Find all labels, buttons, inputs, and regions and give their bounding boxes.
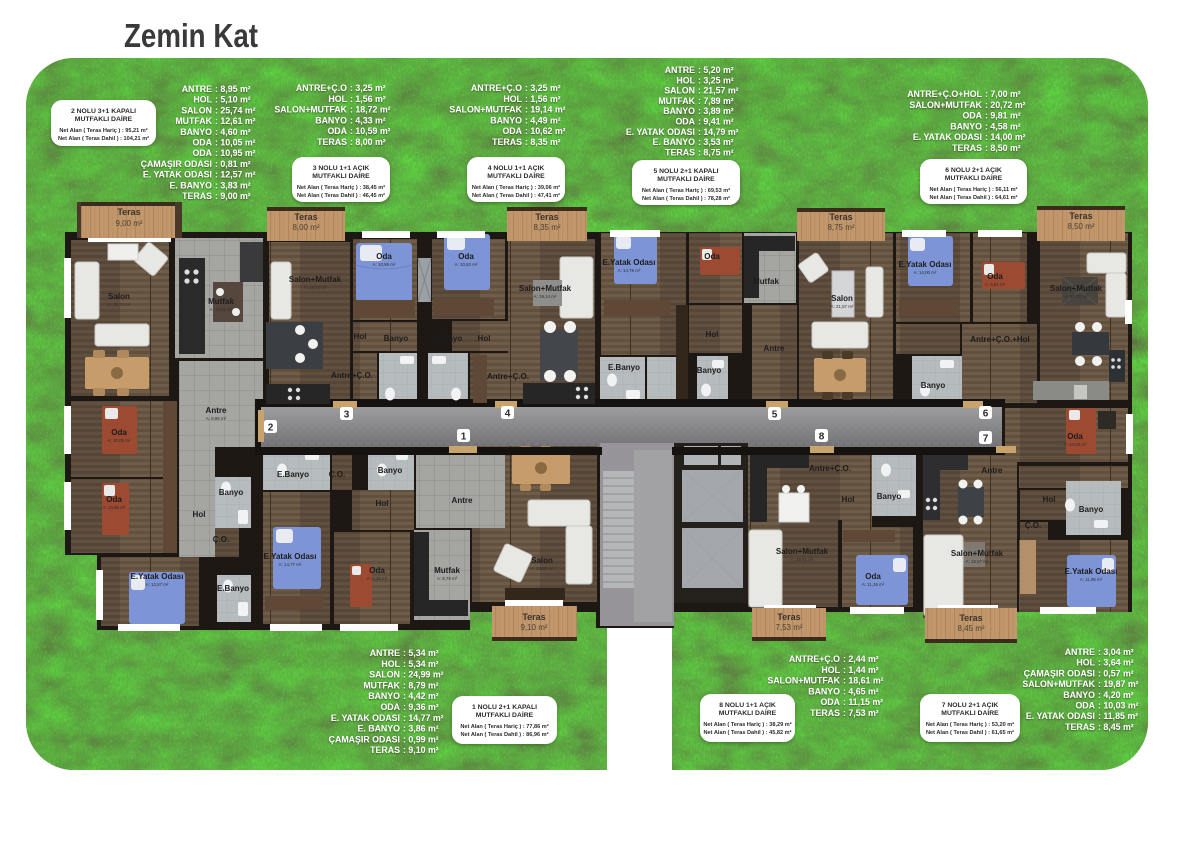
svg-text:Net Alan ( Teras Hariç ) : 39,: Net Alan ( Teras Hariç ) : 39,06 m² (472, 184, 560, 191)
svg-text:MUTFAKLI DAİRE: MUTFAKLI DAİRE (719, 709, 777, 717)
svg-text:MUTFAKLI DAİRE: MUTFAKLI DAİRE (487, 172, 545, 180)
svg-text:: 19,14 m²: : 19,14 m² (525, 105, 566, 115)
svg-text:2: 2 (268, 423, 274, 434)
svg-text:Net Alan ( Teras Hariç ) : 56,: Net Alan ( Teras Hariç ) : 56,11 m² (930, 186, 1018, 193)
svg-text:: 4,42 m²: : 4,42 m² (403, 691, 439, 701)
svg-text:ANTRE+Ç.O: ANTRE+Ç.O (471, 83, 522, 93)
svg-text:: 18,61 m²: : 18,61 m² (843, 676, 884, 686)
svg-text:ODA: ODA (675, 117, 695, 127)
svg-text:: 5,34 m²: : 5,34 m² (403, 648, 439, 658)
svg-text:6: 6 (983, 409, 989, 420)
svg-text:TERAS: TERAS (1065, 722, 1095, 732)
svg-text:: 14,79 m²: : 14,79 m² (698, 127, 739, 137)
svg-text:: 0,99 m²: : 0,99 m² (403, 734, 439, 744)
svg-text:Oda: Oda (1067, 432, 1083, 441)
svg-text:A: 14,00 m²: A: 14,00 m² (914, 270, 937, 275)
svg-text:: 8,75 m²: : 8,75 m² (698, 147, 734, 157)
svg-text:ODA: ODA (820, 697, 840, 707)
svg-text:Net Alan ( Teras Dahil ) : 86,: Net Alan ( Teras Dahil ) : 86,96 m² (461, 731, 549, 738)
svg-text:ÇAMAŞIR ODASI: ÇAMAŞIR ODASI (1024, 668, 1095, 678)
svg-text:TERAS: TERAS (182, 191, 212, 201)
svg-text:Zemin Kat: Zemin Kat (124, 18, 258, 55)
svg-text:4: 4 (505, 409, 511, 420)
svg-text:E.Yatak Odası: E.Yatak Odası (1065, 567, 1118, 576)
svg-text:SALON+MUTFAK: SALON+MUTFAK (909, 100, 982, 110)
svg-text:HOL: HOL (676, 75, 695, 85)
svg-text:: 24,99 m²: : 24,99 m² (403, 670, 444, 680)
svg-text:ANTRE: ANTRE (1065, 647, 1095, 657)
svg-text:Hol: Hol (478, 334, 491, 343)
svg-text:Banyo: Banyo (921, 381, 946, 390)
svg-text:7,53 m²: 7,53 m² (775, 623, 802, 632)
svg-text:7: 7 (983, 434, 989, 445)
svg-text:SALON+MUTFAK: SALON+MUTFAK (449, 105, 522, 115)
svg-text:: 5,34 m²: : 5,34 m² (403, 659, 439, 669)
svg-text:ODA: ODA (380, 702, 400, 712)
svg-text:Mutfak: Mutfak (434, 566, 460, 575)
svg-text:: 3,86 m²: : 3,86 m² (403, 724, 439, 734)
svg-text:: 3,53 m²: : 3,53 m² (698, 137, 734, 147)
svg-text:Net Alan ( Teras Hariç ) : 95,: Net Alan ( Teras Hariç ) : 95,21 m² (59, 127, 147, 134)
svg-text:ANTRE+Ç.O: ANTRE+Ç.O (296, 83, 347, 93)
svg-text:HOL: HOL (328, 94, 347, 104)
svg-text:Teras: Teras (522, 612, 545, 622)
svg-text:: 3,25 m²: : 3,25 m² (525, 83, 561, 93)
svg-text:Net Alan ( Teras Dahil ) : 64,: Net Alan ( Teras Dahil ) : 64,61 m² (930, 194, 1018, 201)
svg-text:Banyo: Banyo (1079, 505, 1104, 514)
svg-text:: 19,87 m²: : 19,87 m² (1098, 679, 1139, 689)
svg-text:Salon+Mutfak: Salon+Mutfak (289, 275, 342, 284)
svg-text:BANYO: BANYO (180, 127, 212, 137)
svg-text:: 18,72 m²: : 18,72 m² (350, 105, 391, 115)
svg-text:Banyo: Banyo (877, 492, 902, 501)
svg-text:Banyo: Banyo (438, 334, 463, 343)
svg-text:: 3,25 m²: : 3,25 m² (698, 75, 734, 85)
svg-text:MUTFAK: MUTFAK (658, 96, 695, 106)
svg-text:TERAS: TERAS (665, 147, 695, 157)
svg-text:A: 10,59 m²: A: 10,59 m² (373, 262, 396, 267)
svg-text:Antre+Ç.O.: Antre+Ç.O. (487, 372, 529, 381)
svg-text:: 1,56 m²: : 1,56 m² (525, 94, 561, 104)
svg-text:Hol: Hol (193, 510, 206, 519)
svg-text:: 11,85 m²: : 11,85 m² (1098, 711, 1138, 721)
svg-text:: 4,60 m²: : 4,60 m² (215, 127, 251, 137)
svg-text:: 7,89 m²: : 7,89 m² (698, 96, 734, 106)
svg-text:3 NOLU 1+1 AÇIK: 3 NOLU 1+1 AÇIK (313, 165, 370, 172)
svg-text:: 8,50 m²: : 8,50 m² (985, 143, 1021, 153)
svg-text:: 3,89 m²: : 3,89 m² (698, 106, 734, 116)
svg-text:Salon: Salon (108, 292, 130, 301)
svg-text:BANYO: BANYO (1063, 690, 1095, 700)
svg-text:Teras: Teras (959, 613, 982, 623)
svg-text:: 3,64 m²: : 3,64 m² (1098, 658, 1134, 668)
svg-text:A: 9,36 m²: A: 9,36 m² (367, 576, 388, 581)
svg-text:: 1,44 m²: : 1,44 m² (843, 665, 879, 675)
svg-text:8,75 m²: 8,75 m² (827, 223, 854, 232)
svg-text:MUTFAKLI DAİRE: MUTFAKLI DAİRE (476, 711, 534, 719)
svg-text:8: 8 (819, 432, 825, 443)
svg-text:TERAS: TERAS (810, 708, 840, 718)
svg-text:A: 10,95 m²: A: 10,95 m² (103, 505, 126, 510)
svg-text:BANYO: BANYO (368, 691, 400, 701)
svg-text:: 10,95 m²: : 10,95 m² (215, 148, 256, 158)
svg-text:Net Alan ( Teras Hariç ) : 53,: Net Alan ( Teras Hariç ) : 53,20 m² (926, 721, 1014, 728)
svg-text:2 NOLU 3+1 KAPALI: 2 NOLU 3+1 KAPALI (71, 108, 136, 115)
svg-text:ODA: ODA (192, 148, 212, 158)
svg-text:A: 11,85 m²: A: 11,85 m² (1080, 577, 1103, 582)
svg-text:TERAS: TERAS (952, 143, 982, 153)
svg-text:SALON+MUTFAK: SALON+MUTFAK (767, 676, 840, 686)
svg-text:: 4,65 m²: : 4,65 m² (843, 686, 879, 696)
svg-text:Hol: Hol (842, 495, 855, 504)
svg-text:ANTRE: ANTRE (370, 648, 400, 658)
svg-text:Mutfak: Mutfak (208, 297, 234, 306)
svg-text:A: 25,74 m²: A: 25,74 m² (108, 302, 131, 307)
svg-text:A: 9,81 m²: A: 9,81 m² (985, 282, 1006, 287)
svg-text:A: 19,14 m²: A: 19,14 m² (534, 294, 557, 299)
svg-text:: 21,57 m²: : 21,57 m² (698, 86, 739, 96)
svg-text:Net Alan ( Teras Hariç ) : 69,: Net Alan ( Teras Hariç ) : 69,53 m² (642, 187, 730, 194)
svg-text:: 10,62 m²: : 10,62 m² (525, 126, 566, 136)
svg-text:Banyo: Banyo (697, 366, 722, 375)
svg-text:Oda: Oda (704, 252, 720, 261)
svg-text:BANYO: BANYO (663, 106, 695, 116)
svg-text:HOL: HOL (821, 665, 840, 675)
svg-text:: 10,59 m²: : 10,59 m² (350, 126, 391, 136)
svg-text:Ç.O.: Ç.O. (1025, 521, 1041, 530)
svg-text:HOL: HOL (193, 95, 212, 105)
svg-text:Antre: Antre (764, 344, 785, 353)
svg-text:: 9,81 m²: : 9,81 m² (985, 111, 1021, 121)
svg-text:HOL: HOL (381, 659, 400, 669)
svg-text:8,45 m²: 8,45 m² (957, 624, 984, 633)
svg-text:Antre: Antre (982, 466, 1003, 475)
svg-text:E.Yatak Odası: E.Yatak Odası (131, 572, 184, 581)
svg-text:Hol: Hol (376, 499, 389, 508)
svg-text:E. YATAK ODASI: E. YATAK ODASI (913, 132, 982, 142)
svg-text:Salon+Mutfak: Salon+Mutfak (519, 284, 572, 293)
svg-text:Oda: Oda (106, 495, 122, 504)
svg-text:8,35 m²: 8,35 m² (533, 223, 560, 232)
svg-text:9,00 m²: 9,00 m² (115, 219, 142, 228)
svg-text:: 4,20 m²: : 4,20 m² (1098, 690, 1134, 700)
svg-text:SALON: SALON (181, 105, 212, 115)
svg-text:TERAS: TERAS (370, 745, 400, 755)
svg-text:: 14,00 m²: : 14,00 m² (985, 132, 1026, 142)
svg-text:Teras: Teras (829, 212, 852, 222)
svg-text:5: 5 (772, 410, 778, 421)
svg-text:Net Alan ( Teras Dahil ) : 104: Net Alan ( Teras Dahil ) : 104,21 m² (58, 135, 149, 142)
svg-text:HOL: HOL (503, 94, 522, 104)
svg-text:ODA: ODA (192, 138, 212, 148)
svg-text:Antre: Antre (452, 496, 473, 505)
svg-text:: 7,53 m²: : 7,53 m² (843, 708, 879, 718)
svg-text:Net Alan ( Teras Hariç ) : 38,: Net Alan ( Teras Hariç ) : 38,29 m² (703, 721, 791, 728)
svg-text:E. YATAK ODASI: E. YATAK ODASI (626, 127, 695, 137)
svg-text:Teras: Teras (535, 212, 558, 222)
svg-text:: 12,57 m²: : 12,57 m² (215, 170, 256, 180)
svg-text:ANTRE+Ç.O: ANTRE+Ç.O (789, 654, 840, 664)
svg-text:Ç.O.: Ç.O. (213, 535, 229, 544)
svg-text:Antre+Ç.O.+Hol: Antre+Ç.O.+Hol (970, 335, 1030, 344)
svg-text:: 11,15 m²: : 11,15 m² (843, 697, 883, 707)
svg-text:A: 10,03 m²: A: 10,03 m² (1064, 442, 1087, 447)
svg-text:E.Yatak Odası: E.Yatak Odası (264, 552, 317, 561)
svg-text:Hol: Hol (706, 330, 719, 339)
svg-text:: 10,03 m²: : 10,03 m² (1098, 701, 1139, 711)
svg-text:ODA: ODA (502, 126, 522, 136)
svg-text:1: 1 (461, 432, 467, 443)
svg-text:Teras: Teras (777, 612, 800, 622)
svg-text:3: 3 (344, 410, 350, 421)
svg-text:: 0,81 m²: : 0,81 m² (215, 159, 251, 169)
svg-text:8,50 m²: 8,50 m² (1067, 222, 1094, 231)
svg-text:BANYO: BANYO (808, 686, 840, 696)
svg-text:7 NOLU 2+1 AÇIK: 7 NOLU 2+1 AÇIK (942, 702, 999, 709)
svg-text:ODA: ODA (962, 111, 982, 121)
svg-text:Hol: Hol (354, 332, 367, 341)
svg-text:: 8,00 m²: : 8,00 m² (350, 137, 386, 147)
svg-text:: 8,45 m²: : 8,45 m² (1098, 722, 1134, 732)
svg-text:A: 19,57 m²: A: 19,57 m² (966, 559, 989, 564)
svg-text:SALON+MUTFAK: SALON+MUTFAK (274, 105, 347, 115)
svg-text:A: 18,61 m²: A: 18,61 m² (791, 557, 814, 562)
svg-text:: 2,44 m²: : 2,44 m² (843, 654, 879, 664)
svg-text:Salon+Mutfak: Salon+Mutfak (1050, 284, 1103, 293)
svg-text:: 3,83 m²: : 3,83 m² (215, 180, 251, 190)
svg-text:MUTFAKLI DAİRE: MUTFAKLI DAİRE (75, 115, 133, 123)
svg-text:Teras: Teras (1069, 211, 1092, 221)
svg-text:6 NOLU 2+1 AÇIK: 6 NOLU 2+1 AÇIK (945, 167, 1002, 174)
svg-text:E.Banyo: E.Banyo (277, 470, 309, 479)
svg-text:Antre+Ç.O.: Antre+Ç.O. (331, 371, 373, 380)
svg-text:Oda: Oda (111, 428, 127, 437)
svg-text:Oda: Oda (369, 566, 385, 575)
svg-text:A: 10,62 m²: A: 10,62 m² (455, 262, 478, 267)
svg-text:Salon: Salon (831, 294, 853, 303)
svg-text:: 10,05 m²: : 10,05 m² (215, 138, 256, 148)
svg-text:9,10 m²: 9,10 m² (520, 623, 547, 632)
svg-text:ANTRE: ANTRE (182, 84, 212, 94)
svg-text:ÇAMAŞIR ODASI: ÇAMAŞIR ODASI (141, 159, 212, 169)
svg-text:E. BANYO: E. BANYO (652, 137, 695, 147)
svg-text:A: 14,77 m²: A: 14,77 m² (279, 562, 302, 567)
svg-text:SALON: SALON (369, 670, 400, 680)
svg-text:A: 12,57 m²: A: 12,57 m² (146, 582, 169, 587)
svg-text:E.Banyo: E.Banyo (608, 363, 640, 372)
svg-text:ANTRE: ANTRE (665, 65, 695, 75)
svg-text:E.Yatak Odası: E.Yatak Odası (603, 258, 656, 267)
svg-text:BANYO: BANYO (950, 121, 982, 131)
svg-text:BANYO: BANYO (315, 115, 347, 125)
svg-text:Salon: Salon (531, 556, 553, 565)
svg-text:MUTFAK: MUTFAK (175, 116, 212, 126)
svg-text:E. YATAK ODASI: E. YATAK ODASI (143, 170, 212, 180)
svg-text:A: 18,72 m²: A: 18,72 m² (304, 285, 327, 290)
svg-text:: 8,95 m²: : 8,95 m² (215, 84, 251, 94)
svg-text:5 NOLU 2+1 KAPALI: 5 NOLU 2+1 KAPALI (653, 168, 718, 175)
svg-text:Antre+Ç.O.: Antre+Ç.O. (809, 464, 851, 473)
svg-text:8 NOLU 1+1 AÇIK: 8 NOLU 1+1 AÇIK (719, 702, 776, 709)
svg-text:Net Alan ( Teras Dahil ) : 61,: Net Alan ( Teras Dahil ) : 61,65 m² (926, 729, 1014, 736)
svg-text:A: 14,79 m²: A: 14,79 m² (618, 268, 641, 273)
svg-text:: 7,00 m²: : 7,00 m² (985, 89, 1021, 99)
svg-text:4 NOLU 1+1 AÇIK: 4 NOLU 1+1 AÇIK (488, 165, 545, 172)
svg-text:: 1,56 m²: : 1,56 m² (350, 94, 386, 104)
svg-text:Teras: Teras (117, 207, 140, 217)
svg-text:A: 10,05 m²: A: 10,05 m² (108, 438, 131, 443)
svg-text:Net Alan ( Teras Dahil ) : 46,: Net Alan ( Teras Dahil ) : 46,45 m² (297, 192, 385, 199)
svg-text:Banyo: Banyo (378, 466, 403, 475)
svg-text:: 4,33 m²: : 4,33 m² (350, 115, 386, 125)
svg-text:: 8,35 m²: : 8,35 m² (525, 137, 561, 147)
svg-text:: 8,79 m²: : 8,79 m² (403, 680, 439, 690)
svg-text:E.Banyo: E.Banyo (217, 584, 249, 593)
svg-text:Salon+Mutfak: Salon+Mutfak (776, 547, 829, 556)
svg-text:: 4,58 m²: : 4,58 m² (985, 121, 1021, 131)
svg-text:: 4,49 m²: : 4,49 m² (525, 115, 561, 125)
svg-text:Banyo: Banyo (384, 334, 409, 343)
svg-text:: 25,74 m²: : 25,74 m² (215, 105, 256, 115)
svg-text:Teras: Teras (294, 212, 317, 222)
svg-text:Net Alan ( Teras Dahil ) : 78,: Net Alan ( Teras Dahil ) : 78,28 m² (642, 195, 730, 202)
svg-text:: 5,20 m²: : 5,20 m² (698, 65, 734, 75)
svg-text:A: 12,61 m²: A: 12,61 m² (210, 307, 233, 312)
svg-text:Net Alan ( Teras Dahil ) : 45,: Net Alan ( Teras Dahil ) : 45,82 m² (704, 729, 792, 736)
svg-text:E. BANYO: E. BANYO (357, 724, 400, 734)
svg-text:Mutfak: Mutfak (753, 277, 779, 286)
svg-text:A: 8,95 m²: A: 8,95 m² (206, 416, 227, 421)
svg-text:Net Alan ( Teras Hariç ) : 77,: Net Alan ( Teras Hariç ) : 77,86 m² (460, 723, 548, 730)
svg-text:SALON+MUTFAK: SALON+MUTFAK (1022, 679, 1095, 689)
svg-text:: 9,10 m²: : 9,10 m² (403, 745, 439, 755)
svg-text:: 20,72 m²: : 20,72 m² (985, 100, 1026, 110)
svg-text:A: 11,15 m²: A: 11,15 m² (862, 582, 885, 587)
svg-text:1 NOLU 2+1 KAPALI: 1 NOLU 2+1 KAPALI (472, 704, 537, 711)
svg-text:A: 24,99 m²: A: 24,99 m² (531, 566, 554, 571)
svg-text:E. YATAK ODASI: E. YATAK ODASI (331, 713, 400, 723)
svg-text:Antre: Antre (206, 406, 227, 415)
svg-text:Oda: Oda (987, 272, 1003, 281)
svg-text:: 9,00 m²: : 9,00 m² (215, 191, 251, 201)
svg-text:Banyo: Banyo (219, 488, 244, 497)
svg-text:E. BANYO: E. BANYO (169, 180, 212, 190)
svg-text:: 14,77 m²: : 14,77 m² (403, 713, 444, 723)
svg-text:Ç.O.: Ç.O. (329, 470, 345, 479)
svg-text:A: 8,79 m²: A: 8,79 m² (437, 576, 458, 581)
svg-text:SALON: SALON (664, 86, 695, 96)
svg-text:Net Alan ( Teras Dahil ) : 47,: Net Alan ( Teras Dahil ) : 47,41 m² (472, 192, 560, 199)
svg-text:Hol: Hol (1043, 495, 1056, 504)
svg-text:: 12,61 m²: : 12,61 m² (215, 116, 256, 126)
svg-text:MUTFAKLI DAİRE: MUTFAKLI DAİRE (312, 172, 370, 180)
svg-text:MUTFAKLI DAİRE: MUTFAKLI DAİRE (657, 175, 715, 183)
svg-text:: 3,25 m²: : 3,25 m² (350, 83, 386, 93)
svg-text:: 3,04 m²: : 3,04 m² (1098, 647, 1134, 657)
svg-text:: 0,57 m²: : 0,57 m² (1098, 668, 1134, 678)
svg-text:ÇAMAŞIR ODASI: ÇAMAŞIR ODASI (329, 734, 400, 744)
svg-text:MUTFAKLI DAİRE: MUTFAKLI DAİRE (941, 709, 999, 717)
svg-text:: 9,36 m²: : 9,36 m² (403, 702, 439, 712)
svg-text:E. YATAK ODASI: E. YATAK ODASI (1026, 711, 1095, 721)
svg-text:8,00 m²: 8,00 m² (292, 223, 319, 232)
svg-text:: 9,41 m²: : 9,41 m² (698, 117, 734, 127)
svg-text:BANYO: BANYO (490, 115, 522, 125)
svg-text:A: 21,57 m²: A: 21,57 m² (831, 304, 854, 309)
svg-text:Salon+Mutfak: Salon+Mutfak (951, 549, 1004, 558)
svg-text:ANTRE+Ç.O+HOL: ANTRE+Ç.O+HOL (907, 89, 982, 99)
svg-text:Oda: Oda (865, 572, 881, 581)
svg-text:A: 20,72 m²: A: 20,72 m² (1065, 294, 1088, 299)
svg-text:TERAS: TERAS (492, 137, 522, 147)
svg-text:TERAS: TERAS (317, 137, 347, 147)
svg-text:Oda: Oda (376, 252, 392, 261)
svg-text:MUTFAKLI DAİRE: MUTFAKLI DAİRE (945, 174, 1003, 182)
svg-text:ODA: ODA (1075, 701, 1095, 711)
svg-text:E.Yatak Odası: E.Yatak Odası (899, 260, 952, 269)
svg-text:MUTFAK: MUTFAK (363, 680, 400, 690)
svg-text:HOL: HOL (1076, 658, 1095, 668)
svg-text:ODA: ODA (327, 126, 347, 136)
svg-text:Oda: Oda (458, 252, 474, 261)
svg-text:: 5,10 m²: : 5,10 m² (215, 95, 251, 105)
svg-text:Net Alan ( Teras Hariç ) : 38,: Net Alan ( Teras Hariç ) : 38,45 m² (297, 184, 385, 191)
